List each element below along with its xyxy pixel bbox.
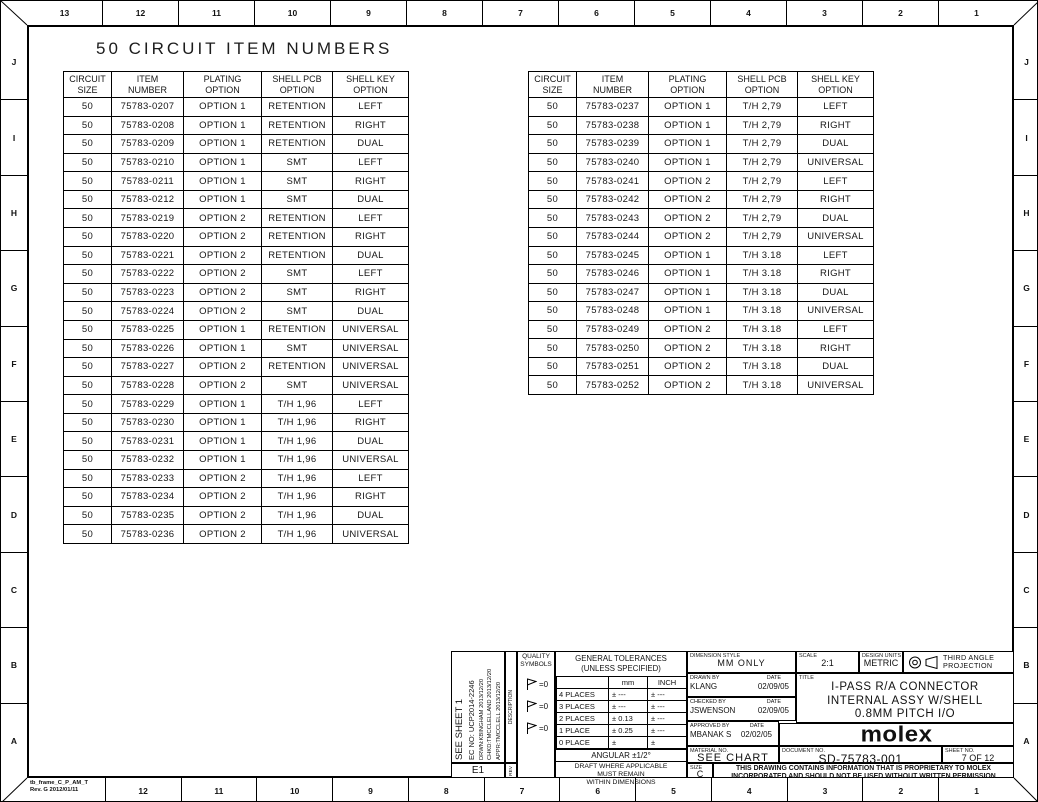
table-cell: 75783-0231 — [112, 432, 184, 451]
material-box: MATERIAL NO. SEE CHART — [687, 746, 779, 763]
table-cell: OPTION 1 — [649, 283, 727, 302]
table-cell: RIGHT — [333, 116, 409, 135]
table-row: 50 75783-0231 OPTION 1 T/H 1,96 DUAL — [64, 432, 409, 451]
col-header-shell-key-option: SHELL KEY OPTION — [333, 72, 409, 98]
grid-ref-label: 10 — [257, 778, 333, 802]
table-cell: DUAL — [798, 135, 874, 154]
table-row: 50 75783-0247 OPTION 1 T/H 3.18 DUAL — [529, 283, 874, 302]
tolerance-inch-value: ± --- — [648, 689, 687, 701]
grid-ref-label: H — [1, 176, 27, 251]
table-cell: OPTION 1 — [184, 172, 262, 191]
approved-by-value: MBANAK S — [690, 730, 731, 739]
table-row: 50 75783-0223 OPTION 2 SMT RIGHT — [64, 283, 409, 302]
tolerances-empty-cell — [557, 677, 609, 689]
table-cell: SMT — [262, 265, 333, 284]
table-cell: 50 — [64, 190, 112, 209]
table-row: 50 75783-0252 OPTION 2 T/H 3.18 UNIVERSA… — [529, 376, 874, 395]
table-row: 50 75783-0234 OPTION 2 T/H 1,96 RIGHT — [64, 488, 409, 507]
table-cell: OPTION 1 — [184, 395, 262, 414]
table-row: 50 75783-0232 OPTION 1 T/H 1,96 UNIVERSA… — [64, 450, 409, 469]
rev-label: REV — [509, 766, 514, 776]
grid-ref-label: H — [1014, 176, 1038, 251]
table-cell: 75783-0251 — [577, 357, 649, 376]
table-cell: T/H 3.18 — [727, 246, 798, 265]
table-cell: OPTION 2 — [184, 209, 262, 228]
table-row: 50 75783-0228 OPTION 2 SMT UNIVERSAL — [64, 376, 409, 395]
table-cell: DUAL — [798, 283, 874, 302]
table-row: 50 75783-0240 OPTION 1 T/H 2,79 UNIVERSA… — [529, 153, 874, 172]
table-cell: 75783-0245 — [577, 246, 649, 265]
table-row: 50 75783-0243 OPTION 2 T/H 2,79 DUAL — [529, 209, 874, 228]
table-row: 50 75783-0248 OPTION 1 T/H 3.18 UNIVERSA… — [529, 302, 874, 321]
table-cell: OPTION 1 — [649, 135, 727, 154]
table-cell: OPTION 1 — [184, 135, 262, 154]
grid-ref-label: E — [1014, 402, 1038, 477]
grid-ref-label: E — [1, 402, 27, 477]
third-angle-projection-icon — [908, 655, 940, 670]
table-cell: 75783-0244 — [577, 227, 649, 246]
table-cell: T/H 3.18 — [727, 357, 798, 376]
col-header-plating-option: PLATING OPTION — [184, 72, 262, 98]
table-cell: 50 — [529, 135, 577, 154]
table-cell: RETENTION — [262, 98, 333, 117]
table-cell: 75783-0250 — [577, 339, 649, 358]
table-cell: 50 — [64, 209, 112, 228]
table-cell: 50 — [64, 395, 112, 414]
table-cell: 50 — [64, 358, 112, 377]
grid-ref-label: 6 — [559, 1, 635, 25]
grid-ref-strip-left: JIHGFEDCBA — [1, 25, 27, 778]
checked-by-label: CHECKED BY — [690, 699, 726, 705]
tolerance-row: 0 PLACE ± ± — [557, 737, 687, 749]
table-cell: UNIVERSAL — [333, 450, 409, 469]
table-row: 50 75783-0242 OPTION 2 T/H 2,79 RIGHT — [529, 190, 874, 209]
table-row: 50 75783-0222 OPTION 2 SMT LEFT — [64, 265, 409, 284]
grid-ref-label: 9 — [333, 778, 409, 802]
table-row: 50 75783-0207 OPTION 1 RETENTION LEFT — [64, 98, 409, 117]
tolerance-inch-value: ± --- — [648, 701, 687, 713]
table-cell: T/H 1,96 — [262, 395, 333, 414]
table-cell: DUAL — [798, 209, 874, 228]
table-cell: UNIVERSAL — [333, 376, 409, 395]
table-cell: T/H 1,96 — [262, 488, 333, 507]
grid-ref-label: 3 — [788, 778, 864, 802]
tolerance-row: 3 PLACES ± --- ± --- — [557, 701, 687, 713]
table-cell: DUAL — [333, 302, 409, 321]
date-label: DATE — [767, 675, 781, 681]
grid-ref-label: 9 — [331, 1, 407, 25]
table-cell: T/H 2,79 — [727, 190, 798, 209]
table-cell: 50 — [64, 339, 112, 358]
table-cell: OPTION 1 — [184, 432, 262, 451]
table-cell: DUAL — [333, 135, 409, 154]
table-cell: 75783-0239 — [577, 135, 649, 154]
table-cell: OPTION 2 — [649, 339, 727, 358]
table-cell: OPTION 2 — [649, 227, 727, 246]
table-cell: LEFT — [333, 469, 409, 488]
table-cell: RETENTION — [262, 246, 333, 265]
tolerance-row: 2 PLACES ± 0.13 ± --- — [557, 713, 687, 725]
approved-date-value: 02/02/05 — [741, 730, 772, 739]
table-cell: 75783-0238 — [577, 116, 649, 135]
table-cell: 50 — [529, 209, 577, 228]
table-cell: OPTION 1 — [649, 265, 727, 284]
table-cell: RIGHT — [333, 228, 409, 247]
checked-date-value: 02/09/05 — [758, 706, 789, 715]
table-cell: 50 — [64, 376, 112, 395]
tolerance-mm-value: ± 0.13 — [609, 713, 648, 725]
table-header-row: CIRCUIT SIZE ITEM NUMBER PLATING OPTION … — [64, 72, 409, 98]
table-cell: 75783-0211 — [112, 172, 184, 191]
table-row: 50 75783-0208 OPTION 1 RETENTION RIGHT — [64, 116, 409, 135]
table-cell: OPTION 2 — [649, 320, 727, 339]
table-header-row: CIRCUIT SIZE ITEM NUMBER PLATING OPTION … — [529, 72, 874, 98]
tolerance-places-label: 4 PLACES — [557, 689, 609, 701]
quality-symbol-row: =0 — [518, 678, 554, 691]
col-header-plating-option: PLATING OPTION — [649, 72, 727, 98]
table-cell: 75783-0237 — [577, 98, 649, 117]
table-cell: DUAL — [798, 357, 874, 376]
table-cell: 50 — [529, 227, 577, 246]
table-row: 50 75783-0219 OPTION 2 RETENTION LEFT — [64, 209, 409, 228]
col-header-circuit-size: CIRCUIT SIZE — [529, 72, 577, 98]
grid-ref-label: I — [1, 100, 27, 175]
table-cell: T/H 3.18 — [727, 302, 798, 321]
table-row: 50 75783-0229 OPTION 1 T/H 1,96 LEFT — [64, 395, 409, 414]
table-cell: 75783-0207 — [112, 98, 184, 117]
table-cell: T/H 3.18 — [727, 376, 798, 395]
table-cell: 75783-0246 — [577, 265, 649, 284]
col-header-shell-key-option: SHELL KEY OPTION — [798, 72, 874, 98]
drawn-date-value: 02/09/05 — [758, 682, 789, 691]
table-cell: LEFT — [333, 395, 409, 414]
revision-ec-no: EC NO: UCP2014-2246 — [467, 654, 478, 760]
table-cell: OPTION 2 — [184, 358, 262, 377]
table-row: 50 75783-0226 OPTION 1 SMT UNIVERSAL — [64, 339, 409, 358]
tolerance-mm-value: ± — [609, 737, 648, 749]
table-cell: SMT — [262, 172, 333, 191]
item-number-table-left: CIRCUIT SIZE ITEM NUMBER PLATING OPTION … — [63, 71, 409, 544]
table-cell: 50 — [529, 246, 577, 265]
table-cell: SMT — [262, 302, 333, 321]
grid-ref-label: A — [1, 704, 27, 778]
table-cell: 50 — [529, 190, 577, 209]
table-cell: OPTION 1 — [649, 153, 727, 172]
table-cell: 75783-0252 — [577, 376, 649, 395]
table-cell: RIGHT — [798, 116, 874, 135]
table-cell: OPTION 1 — [184, 413, 262, 432]
table-cell: OPTION 2 — [649, 209, 727, 228]
tolerances-inch-header: INCH — [648, 677, 687, 689]
tolerances-table: mm INCH 4 PLACES ± --- ± --- 3 PLACES ± … — [556, 676, 687, 749]
table-row: 50 75783-0241 OPTION 2 T/H 2,79 LEFT — [529, 172, 874, 191]
tolerance-inch-value: ± --- — [648, 713, 687, 725]
table-row: 50 75783-0220 OPTION 2 RETENTION RIGHT — [64, 228, 409, 247]
tolerance-places-label: 1 PLACE — [557, 725, 609, 737]
table-cell: OPTION 1 — [649, 98, 727, 117]
table-cell: T/H 1,96 — [262, 432, 333, 451]
draft-note: DRAFT WHERE APPLICABLE MUST REMAIN WITHI… — [556, 761, 686, 781]
table-cell: 50 — [529, 116, 577, 135]
grid-ref-label: 7 — [483, 1, 559, 25]
table-cell: 75783-0240 — [577, 153, 649, 172]
dimension-style-value: MM ONLY — [688, 658, 795, 668]
table-row: 50 75783-0237 OPTION 1 T/H 2,79 LEFT — [529, 98, 874, 117]
table-cell: 75783-0229 — [112, 395, 184, 414]
grid-ref-label: 12 — [106, 778, 182, 802]
table-cell: RIGHT — [333, 172, 409, 191]
projection-label: THIRD ANGLE PROJECTION — [943, 654, 994, 670]
table-cell: 75783-0234 — [112, 488, 184, 507]
table-cell: OPTION 1 — [184, 116, 262, 135]
table-cell: OPTION 2 — [649, 172, 727, 191]
table-cell: DUAL — [333, 246, 409, 265]
table-cell: 75783-0247 — [577, 283, 649, 302]
table-cell: UNIVERSAL — [798, 376, 874, 395]
table-cell: RETENTION — [262, 228, 333, 247]
table-cell: 75783-0208 — [112, 116, 184, 135]
table-cell: 50 — [64, 116, 112, 135]
grid-ref-label: I — [1014, 100, 1038, 175]
table-cell: 50 — [64, 525, 112, 544]
document-number-box: DOCUMENT NO. SD-75783-001 — [779, 746, 942, 763]
table-cell: 50 — [529, 98, 577, 117]
table-cell: 50 — [64, 246, 112, 265]
table-row: 50 75783-0233 OPTION 2 T/H 1,96 LEFT — [64, 469, 409, 488]
quality-symbol-row: =0 — [518, 722, 554, 735]
table-cell: T/H 1,96 — [262, 469, 333, 488]
drawing-title-box: TITLE I-PASS R/A CONNECTOR INTERNAL ASSY… — [796, 673, 1014, 723]
table-cell: UNIVERSAL — [798, 227, 874, 246]
title-label: TITLE — [797, 674, 1013, 681]
rev-column: REV — [505, 763, 517, 778]
table-cell: 75783-0210 — [112, 153, 184, 172]
table-row: 50 75783-0238 OPTION 1 T/H 2,79 RIGHT — [529, 116, 874, 135]
grid-ref-label: B — [1014, 628, 1038, 703]
quality-symbols-box: QUALITY SYMBOLS =0 =0 — [517, 651, 555, 778]
grid-ref-label: D — [1, 477, 27, 552]
table-cell: 50 — [64, 488, 112, 507]
quality-symbol-text: =0 — [539, 702, 548, 711]
table-cell: OPTION 1 — [184, 190, 262, 209]
grid-ref-label: 5 — [635, 1, 711, 25]
tolerance-mm-value: ± --- — [609, 701, 648, 713]
col-header-shell-pcb-option: SHELL PCB OPTION — [727, 72, 798, 98]
drawn-by-label: DRAWN BY — [690, 675, 719, 681]
proprietary-notice: THIS DRAWING CONTAINS INFORMATION THAT I… — [713, 763, 1014, 778]
table-cell: 75783-0225 — [112, 320, 184, 339]
table-cell: LEFT — [798, 246, 874, 265]
table-cell: 50 — [64, 265, 112, 284]
tolerances-box: GENERAL TOLERANCES (UNLESS SPECIFIED) mm… — [555, 651, 687, 778]
drawing-title-line1: I-PASS R/A CONNECTOR — [797, 681, 1013, 695]
grid-ref-label: 8 — [409, 778, 485, 802]
grid-ref-label: D — [1014, 477, 1038, 552]
table-cell: SMT — [262, 283, 333, 302]
revision-id: E1 — [451, 763, 505, 778]
quality-flag-icon — [524, 722, 537, 735]
item-number-table-right: CIRCUIT SIZE ITEM NUMBER PLATING OPTION … — [528, 71, 874, 395]
quality-symbol-text: =0 — [539, 680, 548, 689]
table-cell: T/H 1,96 — [262, 413, 333, 432]
tolerances-header: GENERAL TOLERANCES (UNLESS SPECIFIED) — [556, 652, 686, 676]
page-title: 50 CIRCUIT ITEM NUMBERS — [96, 39, 392, 59]
table-cell: 75783-0226 — [112, 339, 184, 358]
scale-value: 2:1 — [797, 658, 858, 668]
tolerance-places-label: 0 PLACE — [557, 737, 609, 749]
table-cell: SMT — [262, 376, 333, 395]
tolerance-places-label: 2 PLACES — [557, 713, 609, 725]
design-units-box: DESIGN UNITS METRIC — [859, 651, 903, 673]
table-row: 50 75783-0230 OPTION 1 T/H 1,96 RIGHT — [64, 413, 409, 432]
table-cell: LEFT — [798, 98, 874, 117]
drawing-title-line2: INTERNAL ASSY W/SHELL — [797, 695, 1013, 709]
quality-flag-icon — [524, 700, 537, 713]
table-cell: UNIVERSAL — [333, 525, 409, 544]
table-cell: T/H 3.18 — [727, 283, 798, 302]
table-cell: 50 — [64, 153, 112, 172]
title-block: SEE SHEET 1 EC NO: UCP2014-2246 DRWN:KBI… — [451, 651, 1014, 778]
angular-tolerance: ANGULAR ±1/2° — [556, 749, 686, 761]
table-row: 50 75783-0225 OPTION 1 RETENTION UNIVERS… — [64, 320, 409, 339]
table-cell: OPTION 2 — [649, 190, 727, 209]
table-cell: RIGHT — [798, 339, 874, 358]
grid-ref-strip-bottom: tb_frame_C_P_AM_T Rev. G 2012/01/11 1211… — [27, 778, 1014, 802]
revision-history: SEE SHEET 1 EC NO: UCP2014-2246 DRWN:KBI… — [451, 651, 505, 763]
table-cell: UNIVERSAL — [333, 358, 409, 377]
table-cell: DUAL — [333, 506, 409, 525]
col-header-shell-pcb-option: SHELL PCB OPTION — [262, 72, 333, 98]
table-cell: 75783-0235 — [112, 506, 184, 525]
table-cell: T/H 2,79 — [727, 172, 798, 191]
table-row: 50 75783-0211 OPTION 1 SMT RIGHT — [64, 172, 409, 191]
table-cell: 50 — [64, 283, 112, 302]
table-row: 50 75783-0251 OPTION 2 T/H 3.18 DUAL — [529, 357, 874, 376]
sheet-number-value: 7 OF 12 — [943, 753, 1013, 763]
table-cell: 50 — [64, 469, 112, 488]
quality-flag-icon — [524, 678, 537, 691]
table-cell: OPTION 2 — [184, 506, 262, 525]
grid-ref-label: 2 — [863, 1, 939, 25]
table-cell: OPTION 2 — [184, 228, 262, 247]
grid-ref-strip-top: 13121110987654321 — [27, 1, 1014, 25]
table-cell: LEFT — [333, 265, 409, 284]
scale-box: SCALE 2:1 — [796, 651, 859, 673]
table-cell: 75783-0232 — [112, 450, 184, 469]
grid-ref-label: G — [1, 251, 27, 326]
grid-ref-label: 10 — [255, 1, 331, 25]
table-cell: OPTION 2 — [184, 525, 262, 544]
grid-ref-label: G — [1014, 251, 1038, 326]
molex-logo: molex — [861, 723, 933, 745]
table-cell: T/H 3.18 — [727, 265, 798, 284]
table-cell: 50 — [529, 302, 577, 321]
dimension-style-box: DIMENSION STYLE MM ONLY — [687, 651, 796, 673]
table-cell: 75783-0228 — [112, 376, 184, 395]
table-cell: 50 — [529, 153, 577, 172]
table-cell: 50 — [529, 339, 577, 358]
projection-box: THIRD ANGLE PROJECTION — [903, 651, 1014, 673]
grid-ref-label: 13 — [27, 1, 103, 25]
table-cell: T/H 2,79 — [727, 153, 798, 172]
table-row: 50 75783-0249 OPTION 2 T/H 3.18 LEFT — [529, 320, 874, 339]
grid-ref-label: 1 — [939, 778, 1014, 802]
revision-drawn: DRWN:KBINGHAM 2013/12/20 — [479, 654, 487, 760]
table-row: 50 75783-0244 OPTION 2 T/H 2,79 UNIVERSA… — [529, 227, 874, 246]
table-cell: UNIVERSAL — [798, 153, 874, 172]
grid-ref-label: 11 — [179, 1, 255, 25]
molex-logo-box: molex — [779, 723, 1014, 746]
quality-symbols-header: QUALITY SYMBOLS — [518, 653, 554, 669]
drawn-by-box: DRAWN BY DATE KLANG 02/09/05 — [687, 673, 796, 697]
table-cell: 50 — [529, 357, 577, 376]
table-cell: 75783-0230 — [112, 413, 184, 432]
table-cell: OPTION 1 — [649, 302, 727, 321]
table-cell: LEFT — [333, 98, 409, 117]
grid-ref-label: J — [1014, 25, 1038, 100]
date-label: DATE — [767, 699, 781, 705]
table-cell: UNIVERSAL — [333, 339, 409, 358]
table-row: 50 75783-0246 OPTION 1 T/H 3.18 RIGHT — [529, 265, 874, 284]
table-cell: 75783-0241 — [577, 172, 649, 191]
table-cell: RIGHT — [333, 488, 409, 507]
design-units-value: METRIC — [860, 658, 902, 668]
table-cell: RIGHT — [798, 190, 874, 209]
tolerance-inch-value: ± --- — [648, 725, 687, 737]
quality-symbol-row: =0 — [518, 700, 554, 713]
table-cell: UNIVERSAL — [333, 320, 409, 339]
table-cell: 50 — [529, 376, 577, 395]
table-row: 50 75783-0221 OPTION 2 RETENTION DUAL — [64, 246, 409, 265]
table-cell: 50 — [64, 228, 112, 247]
table-cell: 50 — [529, 283, 577, 302]
table-cell: 75783-0224 — [112, 302, 184, 321]
table-cell: OPTION 1 — [184, 98, 262, 117]
table-cell: T/H 3.18 — [727, 339, 798, 358]
table-cell: OPTION 2 — [184, 376, 262, 395]
table-cell: 50 — [64, 98, 112, 117]
table-row: 50 75783-0210 OPTION 1 SMT LEFT — [64, 153, 409, 172]
table-cell: 50 — [64, 172, 112, 191]
revision-see-sheet: SEE SHEET 1 — [454, 654, 467, 760]
table-cell: 50 — [529, 320, 577, 339]
table-cell: 50 — [64, 413, 112, 432]
table-cell: DUAL — [333, 190, 409, 209]
checked-by-value: JSWENSON — [690, 706, 735, 715]
table-cell: SMT — [262, 153, 333, 172]
sheet-number-box: SHEET NO. 7 OF 12 — [942, 746, 1014, 763]
grid-ref-label: 11 — [182, 778, 258, 802]
table-row: 50 75783-0209 OPTION 1 RETENTION DUAL — [64, 135, 409, 154]
table-row: 50 75783-0235 OPTION 2 T/H 1,96 DUAL — [64, 506, 409, 525]
col-header-item-number: ITEM NUMBER — [577, 72, 649, 98]
table-cell: RIGHT — [798, 265, 874, 284]
table-cell: T/H 1,96 — [262, 506, 333, 525]
table-cell: LEFT — [798, 172, 874, 191]
table-cell: OPTION 2 — [184, 283, 262, 302]
table-row: 50 75783-0227 OPTION 2 RETENTION UNIVERS… — [64, 358, 409, 377]
table-cell: LEFT — [798, 320, 874, 339]
table-cell: 50 — [64, 320, 112, 339]
grid-ref-label: 12 — [103, 1, 179, 25]
tolerance-places-label: 3 PLACES — [557, 701, 609, 713]
table-cell: 75783-0221 — [112, 246, 184, 265]
grid-ref-label: F — [1014, 327, 1038, 402]
grid-ref-label: J — [1, 25, 27, 100]
grid-ref-label: C — [1, 553, 27, 628]
table-cell: 75783-0223 — [112, 283, 184, 302]
table-cell: 75783-0248 — [577, 302, 649, 321]
